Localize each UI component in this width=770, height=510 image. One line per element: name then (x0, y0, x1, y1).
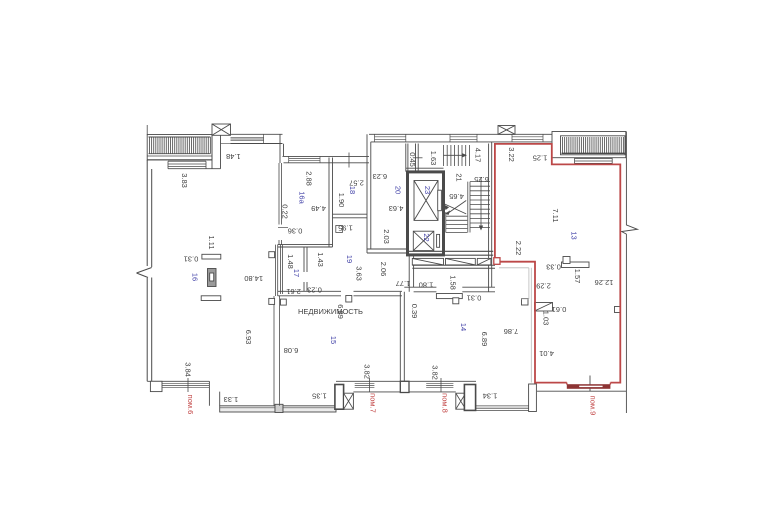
svg-text:1.33: 1.33 (224, 395, 239, 404)
svg-text:0.22: 0.22 (281, 204, 290, 219)
svg-text:6.08: 6.08 (284, 346, 299, 355)
svg-text:4.49: 4.49 (311, 204, 326, 213)
svg-text:4.65: 4.65 (449, 192, 464, 201)
svg-text:2.03: 2.03 (382, 229, 391, 244)
svg-text:15: 15 (329, 336, 338, 344)
svg-text:7.86: 7.86 (504, 327, 519, 336)
svg-text:2.29: 2.29 (536, 282, 551, 291)
svg-text:3.22: 3.22 (507, 147, 516, 162)
svg-text:1.58: 1.58 (449, 275, 458, 290)
svg-text:пом.7: пом.7 (369, 393, 378, 413)
svg-text:0.31: 0.31 (184, 254, 199, 263)
svg-text:16а: 16а (298, 191, 307, 204)
svg-text:3.84: 3.84 (184, 362, 193, 377)
svg-text:13: 13 (570, 231, 579, 239)
svg-text:1.48: 1.48 (226, 152, 241, 161)
svg-text:23: 23 (423, 186, 432, 194)
svg-text:0.61: 0.61 (552, 305, 567, 314)
svg-text:1.25: 1.25 (533, 154, 548, 163)
svg-text:1.77: 1.77 (396, 279, 411, 288)
svg-text:1.90: 1.90 (337, 193, 346, 208)
svg-text:0.23: 0.23 (307, 286, 322, 295)
svg-text:1.48: 1.48 (286, 254, 295, 269)
svg-text:1.34: 1.34 (483, 392, 498, 401)
svg-text:12.26: 12.26 (595, 278, 614, 287)
svg-text:пом.9: пом.9 (589, 396, 598, 416)
svg-text:1.11: 1.11 (207, 235, 216, 249)
svg-text:0.36: 0.36 (288, 227, 303, 236)
svg-text:0.39: 0.39 (410, 304, 419, 319)
svg-text:17: 17 (292, 269, 301, 277)
svg-text:1.63: 1.63 (429, 151, 438, 166)
svg-text:4.01: 4.01 (539, 349, 554, 358)
svg-text:0.33: 0.33 (546, 263, 561, 272)
svg-text:2.22: 2.22 (514, 241, 523, 256)
svg-text:6.89: 6.89 (480, 332, 489, 347)
svg-text:6.23: 6.23 (372, 172, 387, 181)
svg-text:3.82: 3.82 (362, 364, 371, 379)
svg-text:4.63: 4.63 (389, 204, 404, 213)
svg-text:пом.6: пом.6 (186, 395, 195, 415)
svg-text:22: 22 (422, 233, 431, 241)
svg-text:1.95: 1.95 (338, 224, 353, 233)
svg-text:пом.8: пом.8 (440, 393, 449, 413)
svg-text:14: 14 (459, 323, 468, 331)
svg-text:3.63: 3.63 (355, 266, 364, 281)
svg-text:4.17: 4.17 (474, 148, 483, 163)
svg-text:21: 21 (455, 173, 464, 181)
svg-text:2.06: 2.06 (379, 262, 388, 277)
svg-text:2.61: 2.61 (286, 287, 301, 296)
svg-text:16: 16 (191, 273, 200, 281)
svg-text:20: 20 (394, 186, 403, 194)
svg-text:0.45: 0.45 (408, 152, 417, 167)
svg-text:1.35: 1.35 (312, 392, 327, 401)
svg-text:19: 19 (345, 255, 354, 263)
svg-text:1.03: 1.03 (542, 311, 551, 326)
svg-text:14.80: 14.80 (244, 274, 263, 283)
svg-text:0.31: 0.31 (467, 294, 482, 303)
svg-text:2.57: 2.57 (349, 179, 364, 188)
svg-text:3.82: 3.82 (430, 365, 439, 380)
svg-text:6.25: 6.25 (474, 175, 489, 184)
svg-text:2.88: 2.88 (304, 171, 313, 186)
svg-text:6.93: 6.93 (244, 330, 253, 345)
svg-text:1.80: 1.80 (419, 281, 434, 290)
svg-text:1.43: 1.43 (316, 252, 325, 267)
svg-text:1.57: 1.57 (573, 269, 582, 284)
svg-text:НЕДВИЖИМОСТЬ: НЕДВИЖИМОСТЬ (298, 307, 363, 316)
svg-text:7.11: 7.11 (551, 208, 560, 222)
svg-text:3.83: 3.83 (180, 173, 189, 188)
